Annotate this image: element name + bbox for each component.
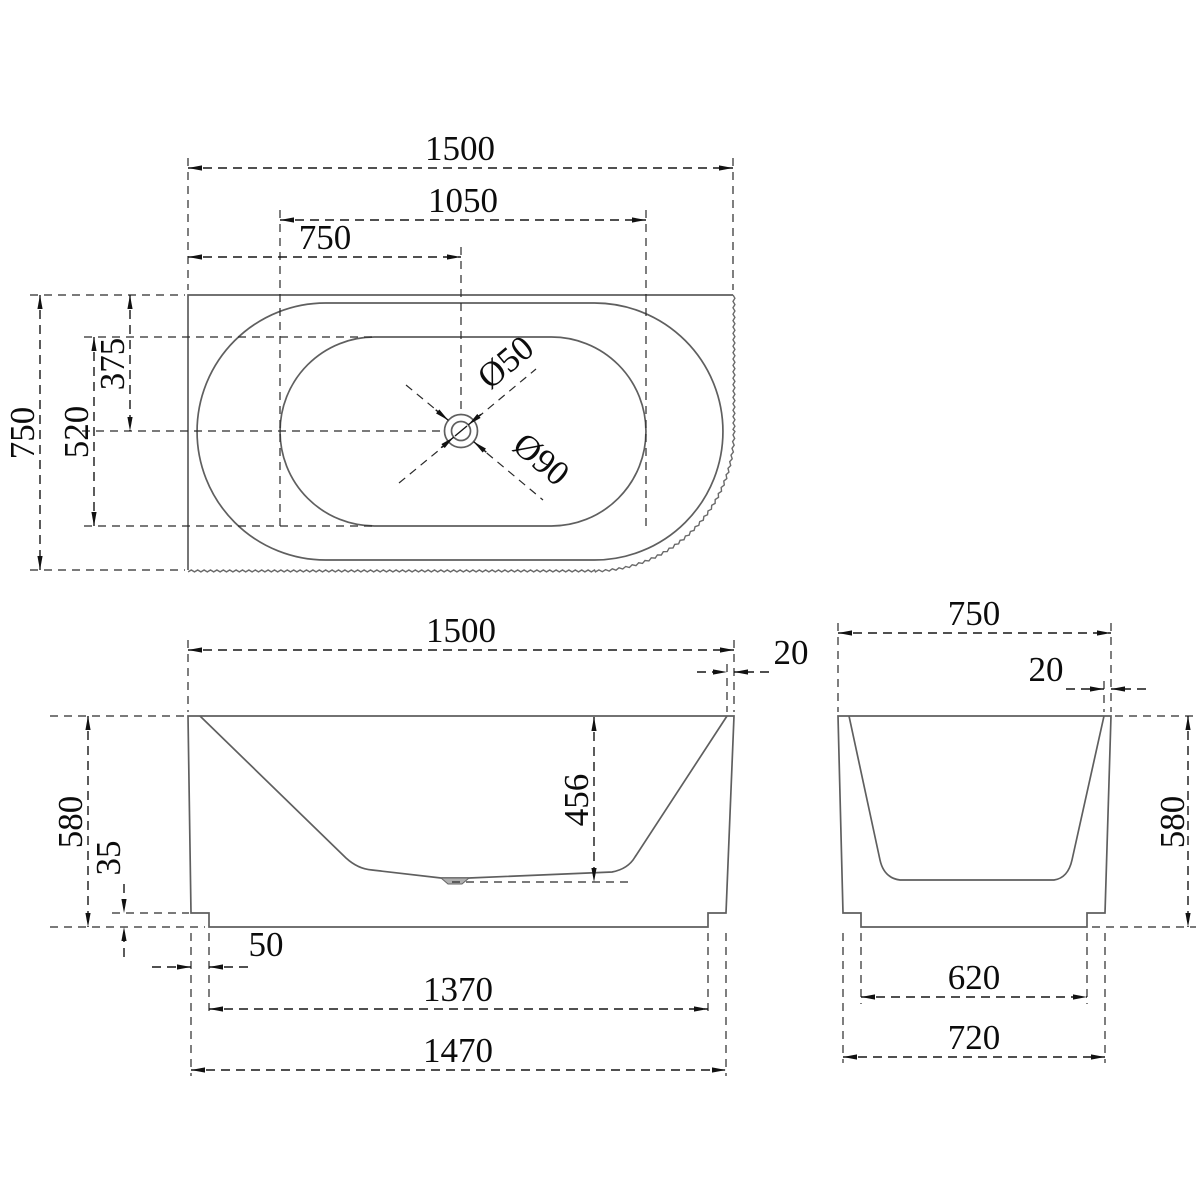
dim-label-20-front: 20 xyxy=(774,633,809,672)
dim-label-35: 35 xyxy=(89,841,128,876)
dim-label-1470: 1470 xyxy=(423,1031,493,1070)
dim-label-1500-top: 1500 xyxy=(425,129,495,168)
dim-label-720: 720 xyxy=(948,1018,1001,1057)
dim-label-456: 456 xyxy=(557,774,596,827)
dim-label-1370: 1370 xyxy=(423,970,493,1009)
dim-label-750-horizontal: 750 xyxy=(299,218,352,257)
dim-label-750-side: 750 xyxy=(948,594,1001,633)
dim-label-520: 520 xyxy=(57,406,96,459)
dim-label-1500-front: 1500 xyxy=(426,611,496,650)
dim-label-1050: 1050 xyxy=(428,181,498,220)
dim-label-750-vertical: 750 xyxy=(3,407,42,460)
dim-label-580-front: 580 xyxy=(51,796,90,849)
bathtub-technical-drawing: 1500 1050 750 750 520 375 Ø50 Ø90 xyxy=(0,0,1200,1200)
dim-label-620: 620 xyxy=(948,958,1001,997)
dim-label-375: 375 xyxy=(93,338,132,391)
dim-label-20-side: 20 xyxy=(1029,650,1064,689)
canvas-background xyxy=(0,0,1200,1200)
dim-label-50: 50 xyxy=(249,925,284,964)
dim-label-580-side: 580 xyxy=(1153,796,1192,849)
